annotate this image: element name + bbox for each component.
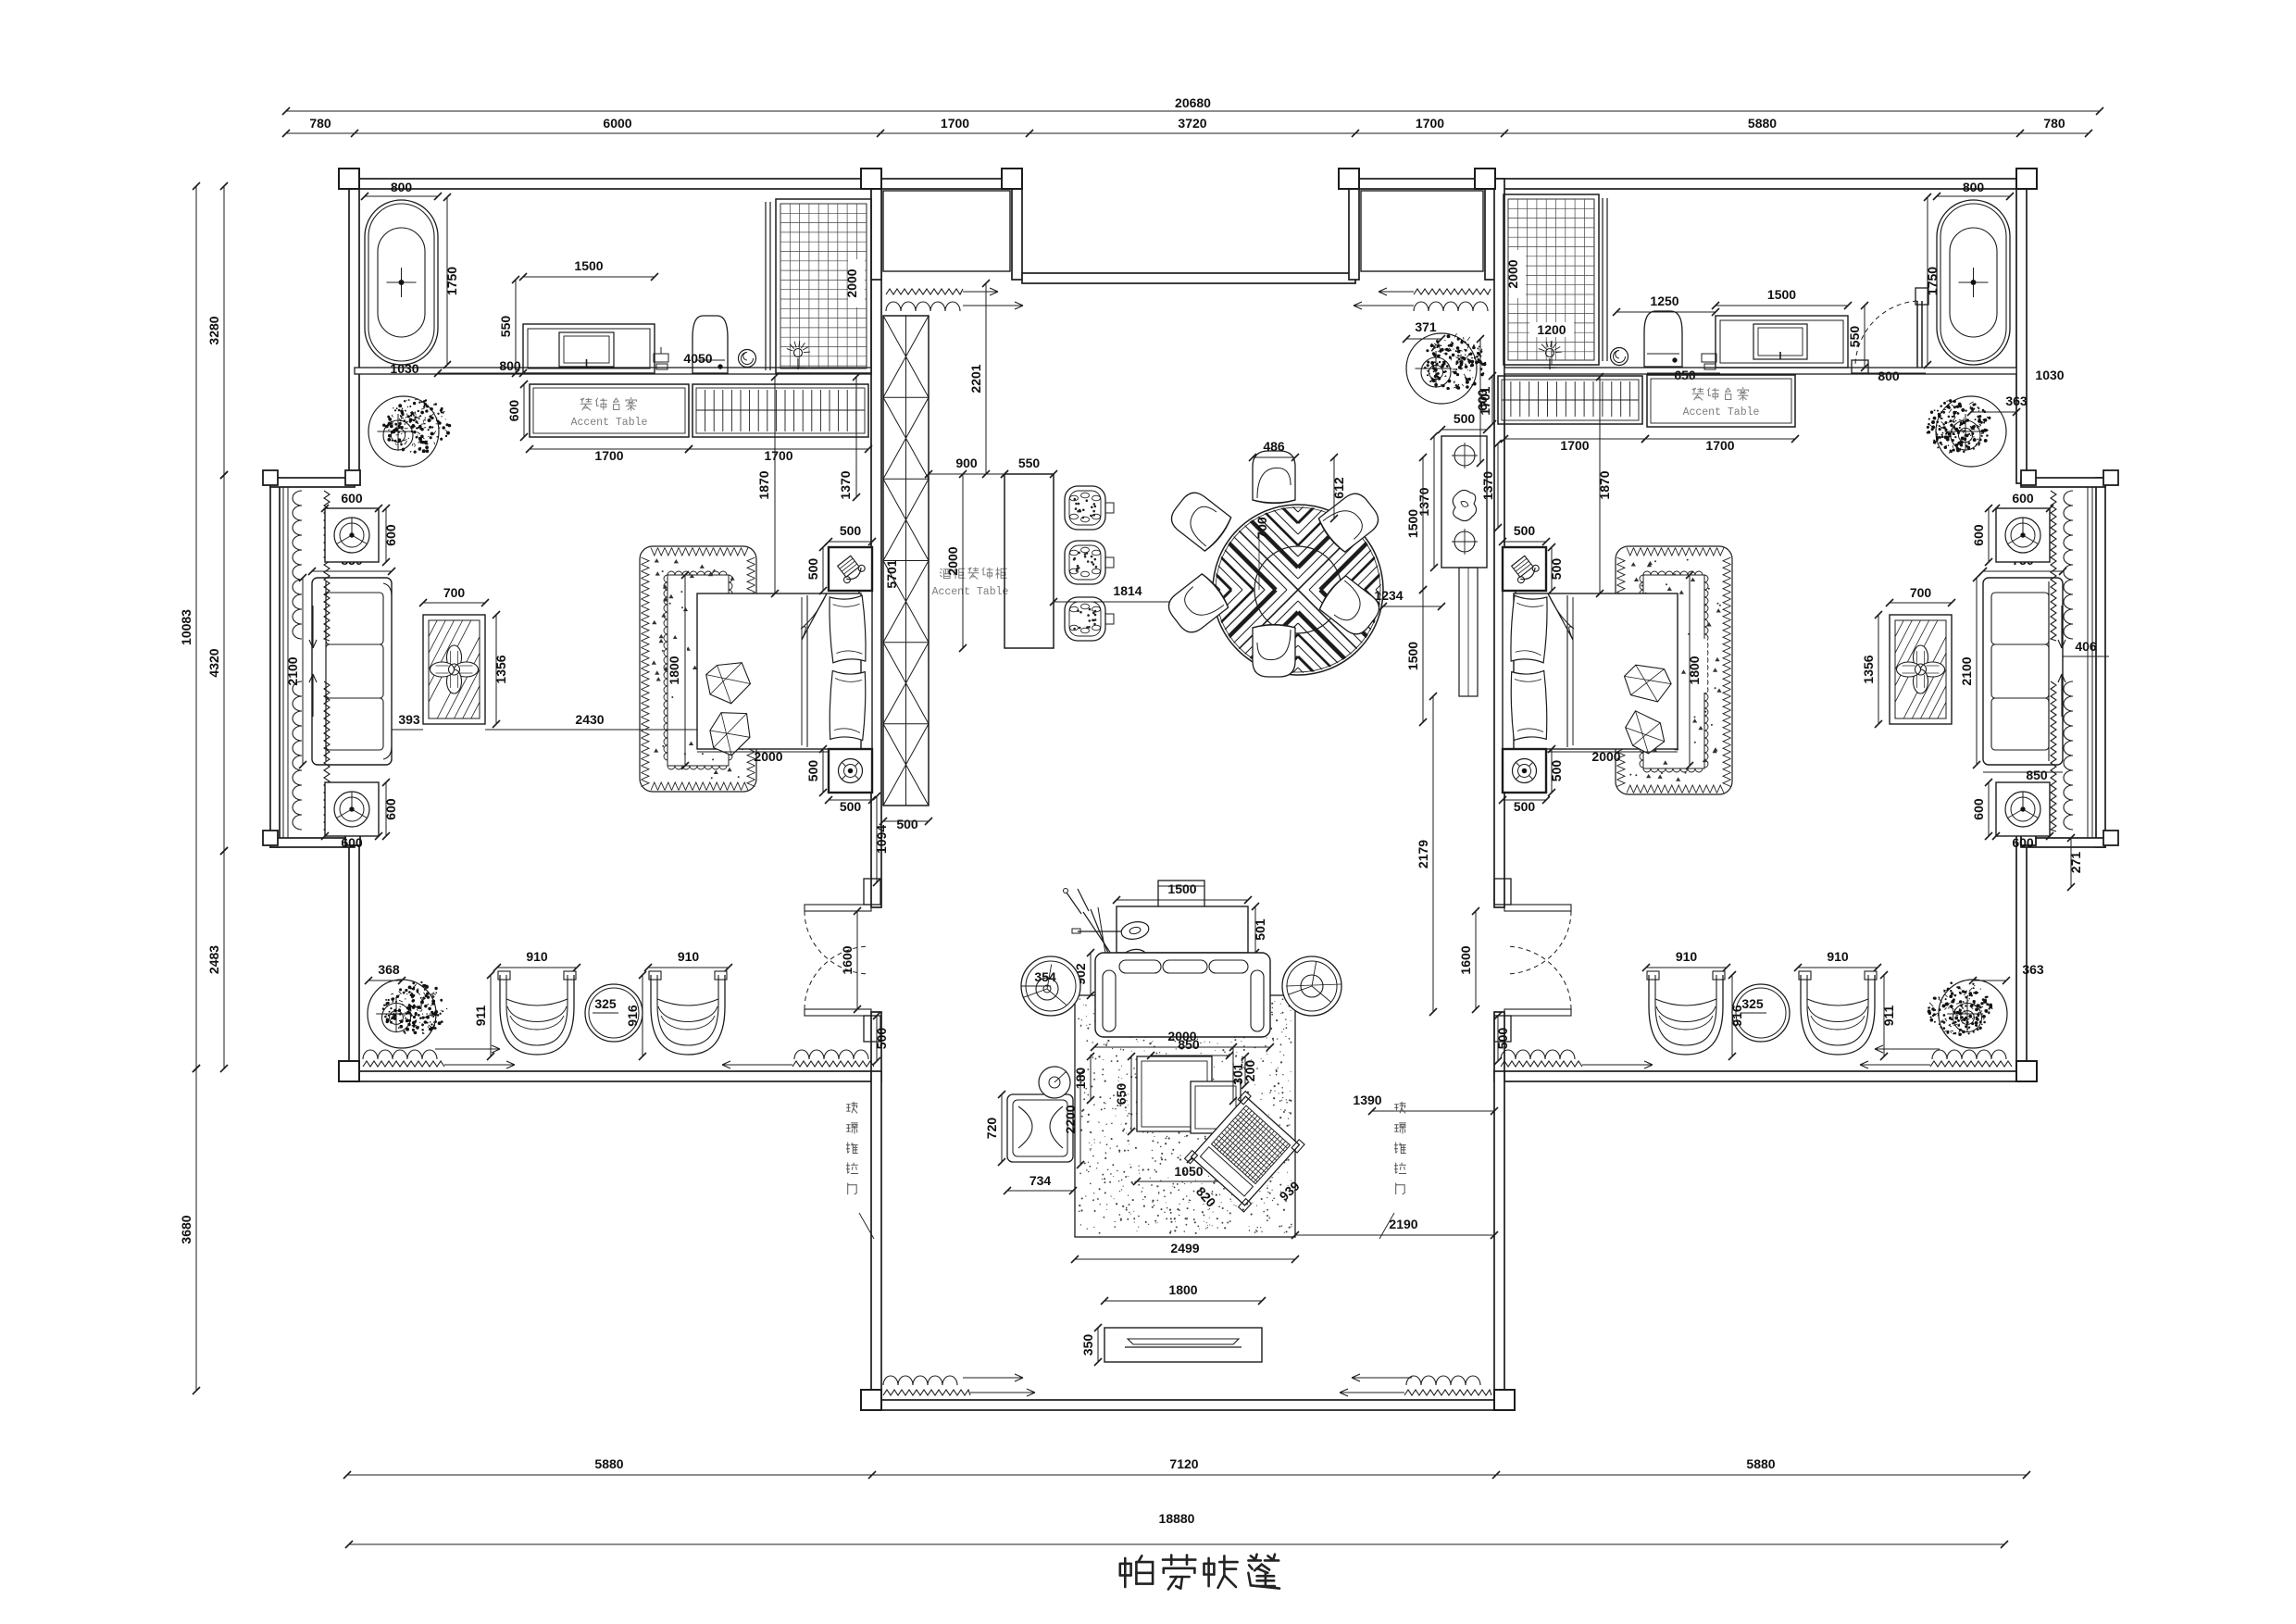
svg-text:271: 271: [2068, 852, 2083, 874]
svg-text:500: 500: [896, 817, 918, 831]
svg-text:1700: 1700: [1705, 438, 1734, 453]
svg-text:1800: 1800: [667, 656, 681, 684]
svg-text:1500: 1500: [1767, 287, 1796, 302]
svg-text:600: 600: [383, 524, 398, 546]
svg-text:10083: 10083: [179, 609, 193, 645]
svg-text:2201: 2201: [968, 364, 983, 393]
svg-text:1750: 1750: [1925, 267, 1940, 295]
svg-text:2190: 2190: [1389, 1217, 1417, 1231]
svg-text:910: 910: [678, 949, 700, 964]
svg-text:5880: 5880: [1748, 116, 1777, 131]
svg-text:500: 500: [840, 523, 862, 538]
svg-text:371: 371: [1415, 319, 1437, 334]
svg-text:2483: 2483: [206, 945, 221, 974]
svg-text:500: 500: [1514, 799, 1536, 814]
svg-text:368: 368: [378, 962, 400, 977]
svg-text:1700: 1700: [1560, 438, 1589, 453]
svg-text:500: 500: [1549, 558, 1564, 581]
svg-text:1356: 1356: [1861, 655, 1876, 683]
svg-text:1750: 1750: [444, 267, 459, 295]
svg-text:800: 800: [391, 180, 413, 194]
svg-text:363: 363: [2022, 962, 2044, 977]
svg-text:734: 734: [1029, 1173, 1052, 1188]
svg-text:916: 916: [625, 1005, 640, 1027]
svg-text:Accent Table: Accent Table: [1683, 406, 1760, 418]
svg-text:1870: 1870: [756, 470, 771, 499]
svg-text:1356: 1356: [493, 655, 508, 683]
svg-text:354: 354: [1034, 969, 1056, 984]
svg-text:1500: 1500: [1405, 642, 1420, 670]
svg-text:2499: 2499: [1170, 1241, 1199, 1255]
svg-text:1250: 1250: [1650, 294, 1678, 308]
svg-text:700: 700: [1254, 517, 1269, 539]
svg-text:3680: 3680: [179, 1215, 193, 1243]
svg-text:325: 325: [1741, 996, 1764, 1011]
svg-text:916: 916: [1729, 1005, 1744, 1027]
svg-text:1600: 1600: [840, 945, 855, 974]
svg-text:500: 500: [840, 799, 862, 814]
svg-text:Accent Table: Accent Table: [571, 417, 648, 429]
svg-text:1050: 1050: [1174, 1164, 1203, 1179]
svg-text:1700: 1700: [764, 448, 792, 463]
svg-text:1814: 1814: [1113, 583, 1142, 598]
svg-text:2200: 2200: [1063, 1105, 1078, 1133]
svg-text:5880: 5880: [1746, 1456, 1775, 1471]
svg-text:1030: 1030: [2035, 368, 2064, 382]
svg-text:600: 600: [506, 400, 521, 422]
svg-text:1370: 1370: [838, 470, 853, 499]
svg-text:2000: 2000: [1505, 259, 1520, 288]
svg-text:1600: 1600: [1458, 945, 1473, 974]
svg-text:2000: 2000: [1591, 749, 1620, 764]
svg-text:2100: 2100: [1959, 656, 1974, 685]
svg-text:1390: 1390: [1353, 1093, 1381, 1107]
svg-text:500: 500: [1514, 523, 1536, 538]
svg-text:2100: 2100: [285, 656, 300, 685]
svg-text:800: 800: [1878, 369, 1900, 383]
svg-text:911: 911: [473, 1005, 488, 1026]
svg-text:600: 600: [1971, 524, 1986, 546]
svg-text:780: 780: [309, 116, 331, 131]
svg-text:1700: 1700: [594, 448, 623, 463]
svg-text:1870: 1870: [1597, 470, 1612, 499]
svg-text:20680: 20680: [1175, 95, 1211, 110]
svg-text:486: 486: [1263, 439, 1285, 454]
svg-text:1094: 1094: [874, 825, 889, 854]
svg-text:1030: 1030: [390, 361, 418, 376]
svg-text:2430: 2430: [575, 712, 604, 727]
svg-text:4050: 4050: [683, 351, 712, 366]
svg-text:1200: 1200: [1537, 322, 1566, 337]
svg-text:650: 650: [1114, 1083, 1129, 1106]
svg-text:1500: 1500: [1405, 509, 1420, 538]
svg-text:4320: 4320: [206, 648, 221, 677]
svg-text:550: 550: [498, 316, 513, 338]
svg-text:911: 911: [1881, 1005, 1896, 1026]
svg-text:1234: 1234: [1374, 588, 1403, 603]
svg-text:900: 900: [955, 456, 978, 470]
svg-text:550: 550: [1018, 456, 1041, 470]
svg-text:1700: 1700: [1416, 116, 1444, 131]
svg-text:600: 600: [383, 798, 398, 820]
svg-text:Accent Table: Accent Table: [932, 586, 1009, 598]
svg-text:500: 500: [1549, 760, 1564, 782]
svg-text:3720: 3720: [1178, 116, 1206, 131]
svg-text:200: 200: [1242, 1060, 1257, 1082]
svg-text:850: 850: [2026, 768, 2048, 782]
svg-text:700: 700: [1910, 585, 1932, 600]
svg-text:363: 363: [2005, 394, 2028, 408]
svg-text:406: 406: [2075, 639, 2097, 654]
svg-text:600: 600: [1971, 798, 1986, 820]
svg-text:600: 600: [2012, 835, 2034, 850]
svg-text:800: 800: [1963, 180, 1985, 194]
svg-text:2000: 2000: [754, 749, 782, 764]
svg-text:1800: 1800: [1687, 656, 1702, 684]
svg-text:612: 612: [1331, 477, 1346, 499]
svg-text:500: 500: [1495, 1028, 1510, 1050]
svg-text:2000: 2000: [945, 546, 960, 575]
svg-text:7120: 7120: [1169, 1456, 1198, 1471]
svg-text:1800: 1800: [1168, 1282, 1197, 1297]
svg-text:600: 600: [341, 835, 363, 850]
svg-text:910: 910: [526, 949, 548, 964]
svg-text:2179: 2179: [1416, 840, 1430, 868]
svg-text:500: 500: [805, 558, 820, 581]
svg-text:850: 850: [1178, 1037, 1200, 1052]
svg-text:2000: 2000: [844, 269, 859, 297]
svg-text:18880: 18880: [1159, 1511, 1195, 1526]
svg-text:393: 393: [398, 712, 420, 727]
svg-text:1370: 1370: [1480, 471, 1495, 500]
svg-text:500: 500: [874, 1028, 889, 1050]
svg-text:1700: 1700: [941, 116, 969, 131]
svg-text:780: 780: [2043, 116, 2065, 131]
svg-text:1500: 1500: [1167, 881, 1196, 896]
svg-text:910: 910: [1827, 949, 1849, 964]
svg-text:325: 325: [594, 996, 617, 1011]
svg-text:6000: 6000: [603, 116, 631, 131]
svg-text:5701: 5701: [884, 559, 899, 588]
svg-text:1500: 1500: [574, 258, 603, 273]
svg-text:910: 910: [1676, 949, 1698, 964]
svg-text:350: 350: [1080, 1334, 1095, 1356]
svg-text:700: 700: [443, 585, 466, 600]
svg-text:5880: 5880: [594, 1456, 623, 1471]
svg-text:3280: 3280: [206, 316, 221, 344]
svg-text:600: 600: [341, 491, 363, 506]
svg-text:501: 501: [1253, 918, 1267, 941]
svg-text:720: 720: [984, 1118, 999, 1140]
svg-text:600: 600: [2012, 491, 2034, 506]
svg-text:500: 500: [805, 760, 820, 782]
svg-text:500: 500: [1454, 411, 1476, 426]
svg-text:1701: 1701: [1478, 386, 1492, 415]
